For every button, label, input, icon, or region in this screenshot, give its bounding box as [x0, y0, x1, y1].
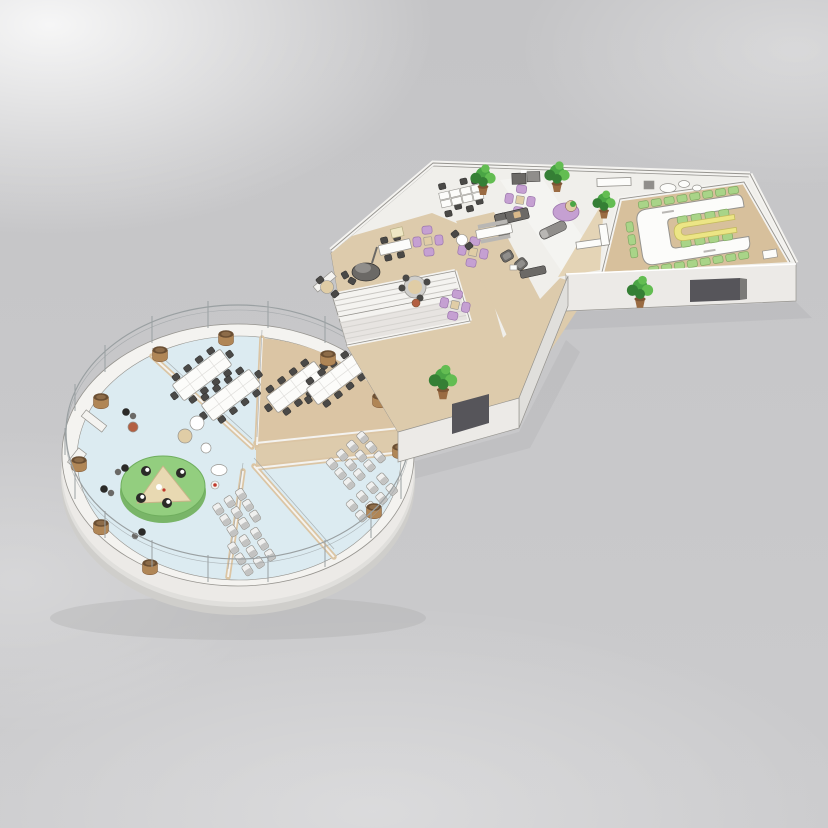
white-counter	[597, 177, 631, 186]
floorplan-render: 3D isometric cutaway render of an office…	[0, 0, 828, 828]
meeting-room-cabinet	[762, 249, 777, 259]
door-opening-main	[690, 278, 740, 302]
gray-box	[644, 181, 654, 189]
side-table	[510, 265, 517, 270]
fire-extinguisher-marker	[211, 481, 219, 489]
red-stool	[412, 299, 420, 307]
door-jamb	[740, 278, 747, 300]
triangle-table-accent	[162, 488, 165, 491]
triangle-table-dish	[156, 484, 162, 490]
green-platform	[120, 456, 206, 523]
render-canvas: 3D isometric cutaway render of an office…	[0, 0, 828, 828]
